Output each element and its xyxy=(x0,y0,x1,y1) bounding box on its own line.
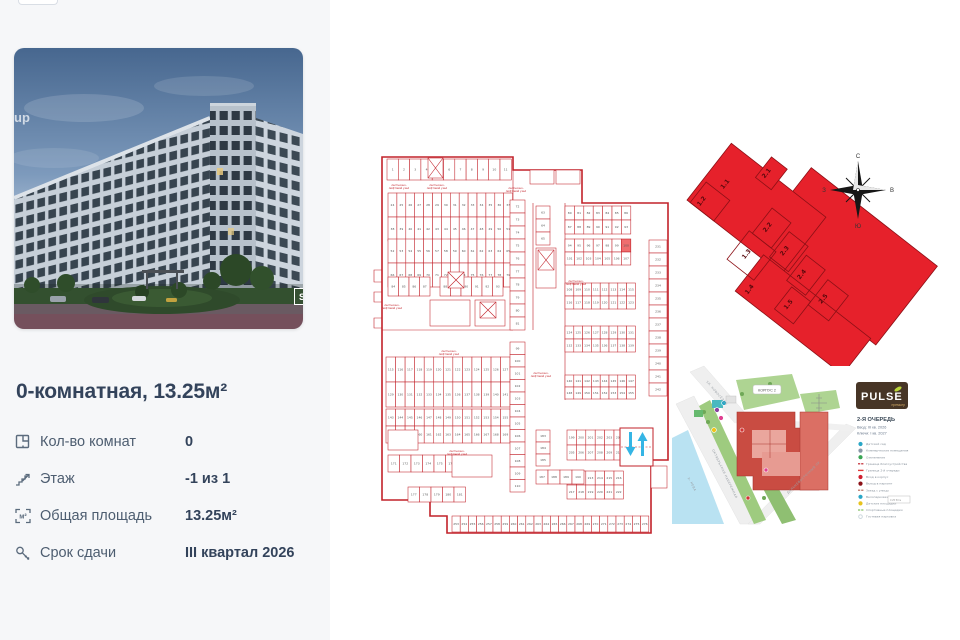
stall-number: 232 xyxy=(655,258,661,262)
stall-number: 173 xyxy=(414,462,420,466)
stall-number: 8 xyxy=(471,168,473,172)
stall-number: 76 xyxy=(516,257,520,261)
stall-number: 234 xyxy=(655,284,661,288)
stall-number: 218 xyxy=(578,490,584,494)
stall-number: 125 xyxy=(575,331,581,335)
stall-number: 60 xyxy=(462,249,466,253)
stall-number: 2 xyxy=(403,168,405,172)
phase-line2: Ключи: I кв. 2027 xyxy=(857,432,887,436)
stall-number: 103 xyxy=(586,257,592,261)
legend-label: Заезд с улицы xyxy=(866,488,890,492)
spec-value: III квартал 2026 xyxy=(185,545,295,561)
stall-number: 238 xyxy=(655,336,661,340)
legend-label: Озеленение xyxy=(866,455,885,459)
stall-number: 109 xyxy=(575,288,581,292)
stall-number: 260 xyxy=(511,522,517,526)
stall-number: 122 xyxy=(619,301,625,305)
cutoff-button-stub xyxy=(18,0,58,5)
stall-number: 255 xyxy=(470,522,476,526)
stall-number: 81 xyxy=(516,322,520,326)
stall-number: 233 xyxy=(655,271,661,275)
plan-annotation: лестнично-лифтовой узел xyxy=(389,184,410,190)
stall-number: 64 xyxy=(497,249,501,253)
stall-number: 54 xyxy=(408,249,412,253)
plan-annotation: лестнично-лифтовой узел xyxy=(439,350,460,356)
stall-number: 105 xyxy=(604,257,610,261)
stall-number: 136 xyxy=(455,393,461,397)
stall-number: 146 xyxy=(619,379,625,383)
key-icon xyxy=(14,544,32,562)
stall-number: 107 xyxy=(515,446,521,450)
stall-number: 30 xyxy=(444,203,448,207)
stall-number: 123 xyxy=(464,368,470,372)
stall-number: 163 xyxy=(445,433,451,437)
stall-number: 46 xyxy=(462,227,466,231)
stall-number: 142 xyxy=(584,379,590,383)
legend-label: Спортивные площадки xyxy=(866,508,903,512)
stall-number: 268 xyxy=(576,522,582,526)
stall-number: 26 xyxy=(408,203,412,207)
stall-number: 81 xyxy=(577,211,581,215)
floor-plan-viewer[interactable]: 1234567891011243825392640274128422943304… xyxy=(340,70,960,610)
scale-label: 0 25 50 м xyxy=(890,498,901,502)
stall-number: 59 xyxy=(453,249,457,253)
spec-label: Этаж xyxy=(40,471,75,487)
stall-number: 199 xyxy=(569,436,575,440)
stall-number: 52 xyxy=(391,249,395,253)
stall-number: 11 xyxy=(504,168,508,172)
stall-number: 78 xyxy=(497,273,501,277)
stall-number: 141 xyxy=(503,393,509,397)
compass-west: З xyxy=(822,188,826,194)
spec-label: Общая площадь xyxy=(40,508,152,524)
stall-number: 150 xyxy=(455,416,461,420)
stall-number: 256 xyxy=(478,522,484,526)
stall-number: 38 xyxy=(391,227,395,231)
legend-icon xyxy=(858,463,860,464)
stall-number: 75 xyxy=(516,244,520,248)
stall-number: 119 xyxy=(593,301,599,305)
stall-number: 216 xyxy=(616,476,622,480)
stall-number: 259 xyxy=(502,522,508,526)
phase-line1: Ввод: III кв. 2026 xyxy=(857,426,886,430)
stall-number: 86 xyxy=(412,285,416,289)
stall-number: 106 xyxy=(614,257,620,261)
stall-number: 88 xyxy=(577,225,581,229)
stall-number: 239 xyxy=(655,349,661,353)
stall-number: 145 xyxy=(407,416,413,420)
stall-number: 267 xyxy=(568,522,574,526)
stall-number: 124 xyxy=(474,368,480,372)
stall-number: 115 xyxy=(388,368,394,372)
stall-number: 127 xyxy=(593,331,599,335)
stall-number: 202 xyxy=(597,436,603,440)
stall-number: 269 xyxy=(584,522,590,526)
stall-number: 126 xyxy=(584,331,590,335)
stall-number: 79 xyxy=(506,273,510,277)
stall-number: 149 xyxy=(445,416,451,420)
brand-sub: премьер xyxy=(892,403,906,407)
stall-number: 126 xyxy=(493,368,499,372)
stall-number: 213 xyxy=(588,476,594,480)
stall-number: 36 xyxy=(497,203,501,207)
plan-annotation: лестнично-лифтовой узел xyxy=(427,184,448,190)
stall-number: 121 xyxy=(611,301,617,305)
stall-number: 132 xyxy=(417,393,423,397)
stall-number: 80 xyxy=(568,211,572,215)
stall-number: 138 xyxy=(619,344,625,348)
stall-number: 131 xyxy=(407,393,413,397)
stall-number: 207 xyxy=(588,451,594,455)
legend-icon xyxy=(858,449,862,453)
stall-number: 155 xyxy=(628,391,634,395)
stall-number: 112 xyxy=(602,288,608,292)
stall-number: 180 xyxy=(445,493,451,497)
stall-number: 90 xyxy=(596,225,600,229)
stall-number: 150 xyxy=(584,391,590,395)
stall-number: 92 xyxy=(485,285,489,289)
stall-number: 85 xyxy=(402,285,406,289)
stall-number: 64 xyxy=(541,224,545,228)
stall-number: 165 xyxy=(464,433,470,437)
stall-number: 206 xyxy=(578,451,584,455)
stall-number: 134 xyxy=(584,344,590,348)
stall-number: 104 xyxy=(595,257,601,261)
stall-number: 65 xyxy=(541,237,545,241)
building-photo[interactable]: up S xyxy=(14,48,303,329)
stall-number: 137 xyxy=(464,393,470,397)
stall-number: 90 xyxy=(464,285,468,289)
legend-label: Граница 2-й очереди xyxy=(866,469,899,473)
stall-number: 63 xyxy=(541,211,545,215)
stall-number: 132 xyxy=(567,344,573,348)
stall-number: 270 xyxy=(593,522,599,526)
parking-ramp xyxy=(620,428,653,466)
stall-number: 140 xyxy=(567,379,573,383)
parking-banks: 1234567891011243825392640274128422943304… xyxy=(386,158,667,532)
stall-number: 273 xyxy=(617,522,623,526)
stall-number: 146 xyxy=(417,416,423,420)
stall-number: 242 xyxy=(655,388,661,392)
stall-number: 116 xyxy=(397,368,403,372)
stall-number: 47 xyxy=(471,227,475,231)
stall-number: 55 xyxy=(417,249,421,253)
stall-number: 53 xyxy=(399,249,403,253)
stall-number: 272 xyxy=(609,522,615,526)
building-footprint: 1.11.21.31.41.52.12.22.32.42.5 xyxy=(661,120,937,380)
stall-number: 219 xyxy=(588,490,594,494)
stall-number: 133 xyxy=(426,393,432,397)
stall-number: 153 xyxy=(611,391,617,395)
stall-number: 152 xyxy=(602,391,608,395)
stall-number: 89 xyxy=(587,225,591,229)
stall-number: 117 xyxy=(407,368,413,372)
stall-number: 221 xyxy=(606,490,612,494)
stall-number: 121 xyxy=(445,368,451,372)
legend-icon xyxy=(858,495,862,499)
stall-number: 77 xyxy=(516,270,520,274)
compass-south: Ю xyxy=(855,224,861,230)
stall-number: 110 xyxy=(584,288,590,292)
stall-number: 217 xyxy=(569,490,575,494)
stall-number: 45 xyxy=(453,227,457,231)
stall-number: 257 xyxy=(486,522,492,526)
site-map: р. НЕВА xyxy=(672,366,935,524)
stall-number: 154 xyxy=(619,391,625,395)
stall-number: 162 xyxy=(436,433,442,437)
stall-number: 168 xyxy=(493,433,499,437)
stall-number: 83 xyxy=(596,211,600,215)
stall-number: 63 xyxy=(488,249,492,253)
legend-icon xyxy=(858,475,862,479)
stall-number: 183 xyxy=(540,434,546,438)
spec-value: 0 xyxy=(185,434,193,450)
stall-number: 49 xyxy=(488,227,492,231)
stall-number: 181 xyxy=(457,493,463,497)
stall-number: 265 xyxy=(552,522,558,526)
stall-number: 39 xyxy=(399,227,403,231)
stall-number: 94 xyxy=(568,244,572,248)
stall-number: 74 xyxy=(516,231,520,235)
stall-number: 80 xyxy=(516,309,520,313)
stall-number: 235 xyxy=(655,297,661,301)
stall-number: 31 xyxy=(453,203,457,207)
plan-annotation: лестнично-лифтовой узел xyxy=(566,280,587,286)
stall-number: 209 xyxy=(606,451,612,455)
stall-number: 262 xyxy=(527,522,533,526)
stall-number: 214 xyxy=(597,476,603,480)
stall-number: 29 xyxy=(435,203,439,207)
photo-watermark: up xyxy=(14,110,30,125)
stall-number: 145 xyxy=(611,379,617,383)
stall-number: 136 xyxy=(602,344,608,348)
stall-number: 264 xyxy=(543,522,549,526)
stall-number: 56 xyxy=(426,249,430,253)
stall-number: 37 xyxy=(506,203,510,207)
stall-number: 87 xyxy=(423,285,427,289)
stall-number: 69 xyxy=(417,273,421,277)
stall-number: 222 xyxy=(616,490,622,494)
stall-number: 82 xyxy=(587,211,591,215)
stall-number: 32 xyxy=(462,203,466,207)
stall-number: 151 xyxy=(593,391,599,395)
stall-number: 140 xyxy=(493,393,499,397)
stall-number: 169 xyxy=(503,433,509,437)
stall-number: 155 xyxy=(503,416,509,420)
stall-number: 84 xyxy=(391,285,395,289)
stall-number: 7 xyxy=(459,168,461,172)
stall-number: 95 xyxy=(577,244,581,248)
stall-number: 111 xyxy=(593,288,599,292)
stall-number: 258 xyxy=(494,522,500,526)
stall-number: 25 xyxy=(399,203,403,207)
legend-label: Въезд в паркинг xyxy=(866,482,893,486)
stall-number: 172 xyxy=(402,462,408,466)
stall-number: 143 xyxy=(593,379,599,383)
stall-number: 137 xyxy=(611,344,617,348)
stall-number: 171 xyxy=(391,462,397,466)
stall-number: 28 xyxy=(426,203,430,207)
stall-number: 205 xyxy=(569,451,575,455)
legend-icon xyxy=(858,490,860,491)
stall-number: 118 xyxy=(417,368,423,372)
stall-number: 253 xyxy=(453,522,459,526)
stall-number: 131 xyxy=(628,331,634,335)
brand-logo: PULSE xyxy=(861,391,903,403)
stall-number: 133 xyxy=(575,344,581,348)
stall-number: 110 xyxy=(515,484,521,488)
legend-label: Велопарковки xyxy=(866,495,889,499)
stall-number: 134 xyxy=(436,393,442,397)
stall-number: 148 xyxy=(436,416,442,420)
stall-number: 98 xyxy=(605,244,609,248)
svg-text:м²: м² xyxy=(19,514,27,521)
stall-number: 116 xyxy=(567,301,573,305)
stall-number: 96 xyxy=(587,244,591,248)
stall-number: 120 xyxy=(436,368,442,372)
photo-logo-badge: S xyxy=(294,288,303,305)
stall-number: 174 xyxy=(425,462,431,466)
stall-number: 100 xyxy=(515,359,521,363)
stall-number: 177 xyxy=(411,493,417,497)
stall-number: 102 xyxy=(576,257,582,261)
stall-number: 101 xyxy=(515,371,521,375)
stall-number: 61 xyxy=(471,249,475,253)
plan-annotation: лестнично-лифтовой узел xyxy=(382,304,403,310)
page-title: 0-комнатная, 13.25м² xyxy=(16,380,227,404)
stall-number: 125 xyxy=(483,368,489,372)
brand-panel: PULSE премьер xyxy=(856,382,908,409)
stall-number: 77 xyxy=(488,273,492,277)
plan-annotation: лестнично-лифтовой узел xyxy=(506,187,527,193)
stall-number: 84 xyxy=(605,211,609,215)
stall-number: 114 xyxy=(619,288,625,292)
legend-icon xyxy=(858,501,862,505)
stall-number: 71 xyxy=(435,273,439,277)
area-icon: м² xyxy=(14,507,32,525)
spec-row-rooms: Кол-во комнат 0 xyxy=(14,433,314,455)
stall-number: 130 xyxy=(619,331,625,335)
spec-value: -1 из 1 xyxy=(185,471,230,487)
stall-number: 4 xyxy=(426,168,428,172)
stall-number: 185 xyxy=(540,458,546,462)
spec-row-deadline: Срок сдачи III квартал 2026 xyxy=(14,544,314,566)
stall-number: 58 xyxy=(444,249,448,253)
stall-number: 200 xyxy=(578,436,584,440)
stall-number: 91 xyxy=(605,225,609,229)
legend-label: Вход в корпус xyxy=(866,475,889,479)
spec-label: Кол-во комнат xyxy=(40,434,136,450)
stall-number: 237 xyxy=(655,323,661,327)
rooms-icon xyxy=(14,433,32,451)
legend-label: Коммерческие помещения xyxy=(866,449,909,453)
plan-room xyxy=(556,170,580,184)
stall-number: 105 xyxy=(515,421,521,425)
stall-number: 79 xyxy=(516,296,520,300)
stall-number: 189 xyxy=(563,475,569,479)
stall-number: 118 xyxy=(584,301,590,305)
stall-number: 138 xyxy=(474,393,480,397)
stall-number: 139 xyxy=(483,393,489,397)
stall-number: 135 xyxy=(445,393,451,397)
compass-north: С xyxy=(856,154,861,160)
stall-number: 76 xyxy=(480,273,484,277)
legend-icon xyxy=(858,455,862,459)
stall-number: 9 xyxy=(482,168,484,172)
spec-value: 13.25м² xyxy=(185,508,237,524)
stall-number: 117 xyxy=(575,301,581,305)
stall-number: 122 xyxy=(455,368,461,372)
stall-number: 102 xyxy=(515,384,521,388)
stall-number: 99 xyxy=(516,346,520,350)
stall-number: 144 xyxy=(397,416,403,420)
stall-number: 139 xyxy=(628,344,634,348)
plan-svg: 1234567891011243825392640274128422943304… xyxy=(340,70,960,610)
stall-number: 72 xyxy=(516,205,520,209)
stall-number: 35 xyxy=(488,203,492,207)
stall-number: 106 xyxy=(515,434,521,438)
stall-number: 67 xyxy=(399,273,403,277)
stall-number: 231 xyxy=(655,245,661,249)
stall-number: 88 xyxy=(443,285,447,289)
stall-number: 129 xyxy=(611,331,617,335)
stall-number: 75 xyxy=(471,273,475,277)
stall-number: 135 xyxy=(593,344,599,348)
stall-number: 120 xyxy=(602,301,608,305)
stall-number: 68 xyxy=(408,273,412,277)
stall-number: 66 xyxy=(391,273,395,277)
legend-label: Гостевая парковка xyxy=(866,515,896,519)
compass-east: В xyxy=(890,188,894,194)
legend-label: Детский сад xyxy=(866,442,886,446)
stall-number: 153 xyxy=(483,416,489,420)
stall-number: 70 xyxy=(426,273,430,277)
stall-number: 124 xyxy=(567,331,573,335)
stall-number: 108 xyxy=(515,459,521,463)
stall-number: 240 xyxy=(655,362,661,366)
stall-number: 87 xyxy=(568,225,572,229)
building-photo-render xyxy=(14,48,303,329)
plan-room xyxy=(452,455,492,477)
stall-number: 113 xyxy=(611,288,617,292)
stall-number: 147 xyxy=(628,379,634,383)
stall-number: 92 xyxy=(615,225,619,229)
stall-number: 274 xyxy=(625,522,631,526)
stall-number: 188 xyxy=(551,475,557,479)
stall-number: 263 xyxy=(535,522,541,526)
stall-number: 175 xyxy=(437,462,443,466)
stall-number: 42 xyxy=(426,227,430,231)
stall-number: 128 xyxy=(602,331,608,335)
stall-number: 33 xyxy=(471,203,475,207)
stall-number: 161 xyxy=(426,433,432,437)
phase-title: 2-Я ОЧЕРЕДЬ xyxy=(857,417,895,423)
legend-icon xyxy=(858,482,862,486)
stall-number: 78 xyxy=(516,283,520,287)
stall-number: 276 xyxy=(642,522,648,526)
stall-number: 208 xyxy=(597,451,603,455)
spec-row-area: м² Общая площадь 13.25м² xyxy=(14,507,314,529)
plan-room xyxy=(530,170,554,184)
stall-number: 241 xyxy=(655,375,661,379)
stall-number: 203 xyxy=(606,436,612,440)
spec-row-floor: Этаж -1 из 1 xyxy=(14,470,314,492)
stall-number: 34 xyxy=(480,203,484,207)
stall-number: 85 xyxy=(615,211,619,215)
stall-number: 57 xyxy=(435,249,439,253)
stall-number: 141 xyxy=(575,379,581,383)
stall-number: 127 xyxy=(503,368,509,372)
